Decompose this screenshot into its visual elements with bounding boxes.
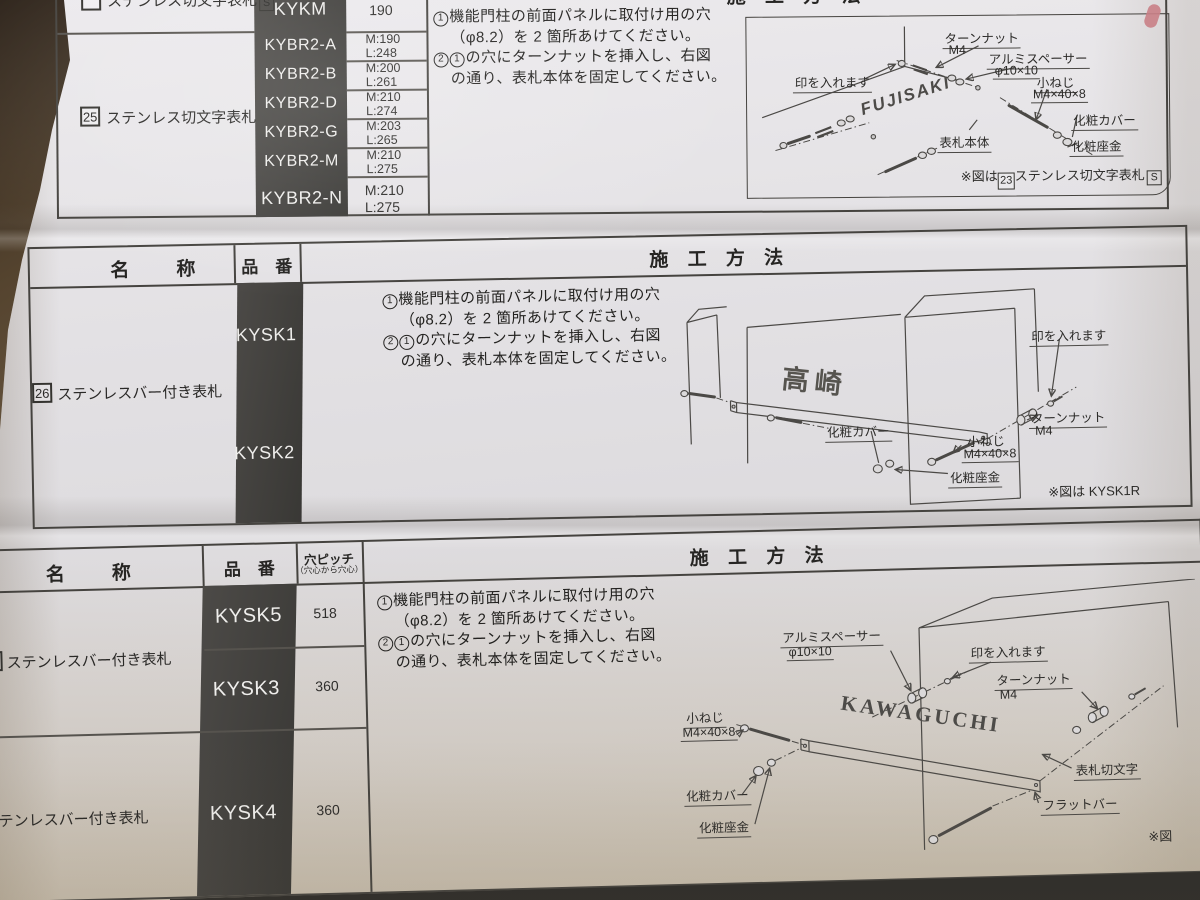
part-label-screw-size: M4×40×8 — [961, 446, 1018, 463]
part-number-column — [236, 282, 304, 523]
product-name: ステンレスバー付き表札 — [57, 380, 222, 404]
part-label-washer: 化粧座金 — [948, 466, 1002, 488]
row-border — [0, 727, 366, 738]
circled-1-icon: 1 — [382, 294, 397, 309]
size-value: M:210L:274 — [366, 90, 401, 118]
nameplate-sample-text: 高崎 — [780, 357, 850, 403]
part-label-cover: 化粧カバー — [684, 784, 751, 807]
circled-1-icon: 1 — [433, 11, 448, 26]
column-border — [362, 542, 373, 892]
part-code: KYKM — [254, 0, 346, 20]
part-label-m4: M4 — [947, 43, 969, 58]
part-code: KYBR2-A — [254, 36, 346, 55]
column-border — [426, 0, 430, 216]
instruction-line: 21の穴にターンナットを挿入し、右図 — [434, 46, 727, 69]
installation-instructions: 1機能門柱の前面パネルに取付け用の穴 （φ8.2）を 2 箇所あけてください。 … — [377, 584, 672, 673]
product-name: テンレスバー付き表札 — [0, 806, 149, 831]
part-code: KYSK1 — [233, 324, 299, 346]
part-code: KYSK2 — [231, 442, 297, 464]
part-label-body: 表札本体 — [937, 132, 991, 153]
section-1-table: 施 工 方 法 ステンレス切文字表札S 25 ステンレス切文字表札 KYKM K… — [55, 0, 1169, 219]
item-number-box — [81, 0, 101, 11]
diagram-note: ※図は KYSK1R — [1048, 480, 1140, 501]
size-value: 190 — [369, 3, 392, 17]
circled-1-icon: 1 — [399, 335, 414, 350]
circled-1-icon: 1 — [394, 636, 409, 651]
part-label-screw-size: M4×40×8 — [1031, 87, 1088, 103]
item-number-box: 26 — [32, 383, 52, 403]
diagram-kawaguchi-flatbar-nameplate: KAWAGUCHI アルミスペーサー φ10×10 印を入れます ターンナット … — [637, 579, 1200, 885]
part-label-spacer-size: φ10×10 — [786, 644, 834, 661]
part-label-mark: 印を入れます — [1029, 324, 1108, 347]
circled-2-icon: 2 — [378, 636, 393, 651]
part-label-flat-bar: フラットバー — [1040, 793, 1120, 816]
part-code: KYBR2-G — [255, 123, 347, 142]
diagram-note: ※図は23ステンレス切文字表札S — [961, 164, 1162, 189]
size-value: M:210L:275 — [365, 182, 404, 216]
pitch-value: 518 — [313, 606, 337, 621]
code-column-header: 品 番 — [234, 252, 300, 278]
method-column-header: 施 工 方 法 — [630, 539, 891, 573]
part-label-mark: 印を入れます — [968, 641, 1048, 664]
part-code: KYBR2-D — [255, 94, 347, 113]
instruction-line: 1機能門柱の前面パネルに取付け用の穴 — [433, 5, 726, 28]
size-value: M:190L:248 — [365, 32, 400, 60]
part-code: KYBR2-M — [255, 152, 347, 171]
part-label-mark: 印を入れます — [793, 72, 872, 94]
product-name: ステンレス切文字表札 — [106, 106, 256, 128]
part-label-m4: M4 — [998, 687, 1020, 703]
size-value: M:203L:265 — [366, 119, 401, 147]
photographed-instruction-sheet: 施 工 方 法 ステンレス切文字表札S 25 ステンレス切文字表札 KYKM K… — [0, 0, 1200, 900]
name-column-header: 名 称 — [90, 253, 230, 283]
type-s-badge: S — [1147, 170, 1162, 185]
diagram-fujisaki-exploded-view: FUJISAKI ターンナット M4 アルミスペーサー φ10×10 印を入れま… — [745, 13, 1171, 199]
product-name: ステンレスバー付き表札 — [6, 648, 171, 673]
part-label-spacer-size: φ10×10 — [993, 63, 1040, 79]
circled-2-icon: 2 — [383, 335, 398, 350]
item-number-box: 25 — [80, 106, 100, 126]
part-label-washer: 化粧座金 — [1069, 136, 1123, 157]
code-column-header: 品 番 — [202, 554, 297, 581]
size-value: M:200L:261 — [366, 61, 401, 89]
part-label-washer: 化粧座金 — [697, 816, 752, 838]
circled-1-icon: 1 — [377, 595, 392, 610]
part-code: KYSK4 — [196, 801, 291, 826]
part-label-cut-letters: 表札切文字 — [1073, 758, 1140, 781]
name-column-header: 名 称 — [20, 557, 171, 588]
installation-instructions: 1機能門柱の前面パネルに取付け用の穴 （φ8.2）を 2 箇所あけてください。 … — [433, 5, 726, 90]
part-number-column — [197, 584, 297, 897]
part-code: KYBR2-N — [256, 187, 348, 209]
instruction-line: （φ8.2）を 2 箇所あけてください。 — [433, 26, 726, 49]
row-border — [57, 31, 254, 34]
part-code: KYBR2-B — [255, 65, 347, 84]
part-label-m4: M4 — [1033, 423, 1055, 438]
part-label-cover: 化粧カバー — [825, 421, 892, 443]
item-number-box — [0, 651, 3, 671]
pitch-column-subheader: （穴心から穴心） — [290, 563, 368, 577]
diagram-note: ※図 — [1148, 826, 1172, 846]
section-2-table: 名 称 品 番 施 工 方 法 KYSK1 KYSK2 26 ステンレスバー付き… — [27, 225, 1192, 529]
part-label-cover: 化粧カバー — [1071, 109, 1138, 131]
part-label-screw-size: M4×40×8 — [680, 725, 737, 742]
circled-2-icon: 2 — [434, 52, 449, 67]
product-name: ステンレス切文字表札S — [107, 0, 274, 12]
instruction-line: の通り、表札本体を固定してください。 — [434, 67, 727, 90]
method-column-header: 施 工 方 法 — [589, 241, 849, 273]
pitch-value: 360 — [316, 803, 340, 818]
pitch-value: 360 — [315, 679, 339, 694]
part-code: KYSK5 — [201, 604, 296, 629]
section-3-table: 名 称 品 番 穴ピッチ （穴心から穴心） 施 工 方 法 KYSK5 518 … — [0, 519, 1200, 900]
circled-1-icon: 1 — [450, 52, 465, 67]
item-number-box: 23 — [998, 172, 1015, 189]
size-value: M:210L:275 — [366, 148, 401, 176]
part-code: KYSK3 — [199, 677, 294, 702]
